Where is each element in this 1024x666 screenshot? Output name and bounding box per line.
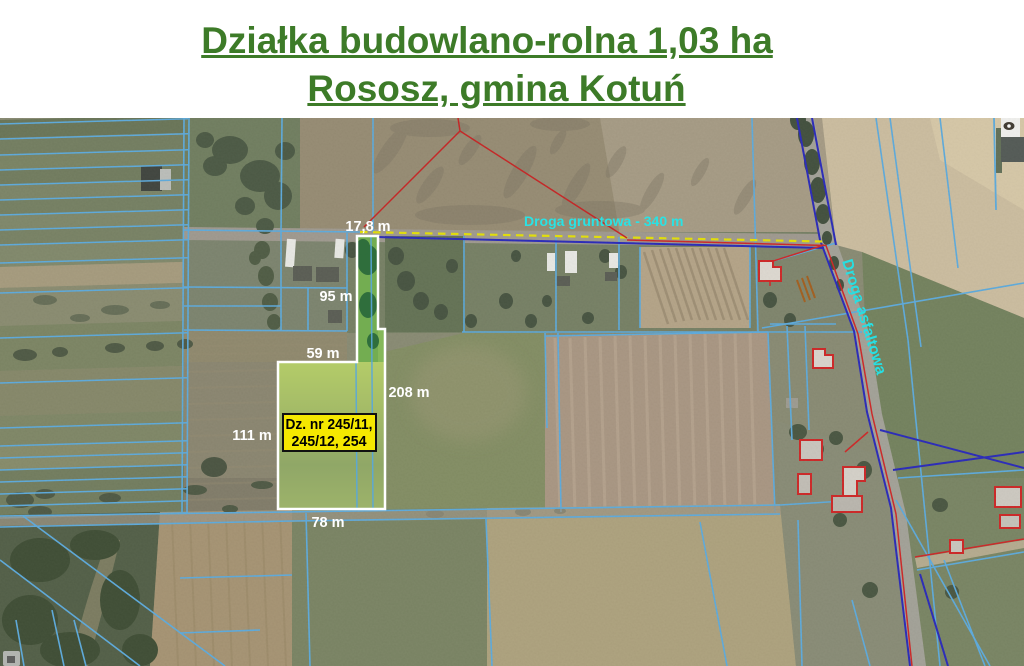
svg-text:245/12, 254: 245/12, 254 (292, 433, 368, 450)
svg-text:78 m: 78 m (311, 515, 344, 531)
svg-text:Droga gruntowa - 340 m: Droga gruntowa - 340 m (524, 213, 683, 229)
svg-text:Dz. nr 245/11,: Dz. nr 245/11, (286, 416, 373, 433)
svg-text:111 m: 111 m (232, 428, 272, 444)
svg-text:17,8 m: 17,8 m (345, 219, 390, 235)
svg-text:95 m: 95 m (319, 289, 352, 305)
svg-text:208 m: 208 m (388, 385, 429, 401)
svg-text:59 m: 59 m (306, 346, 339, 362)
